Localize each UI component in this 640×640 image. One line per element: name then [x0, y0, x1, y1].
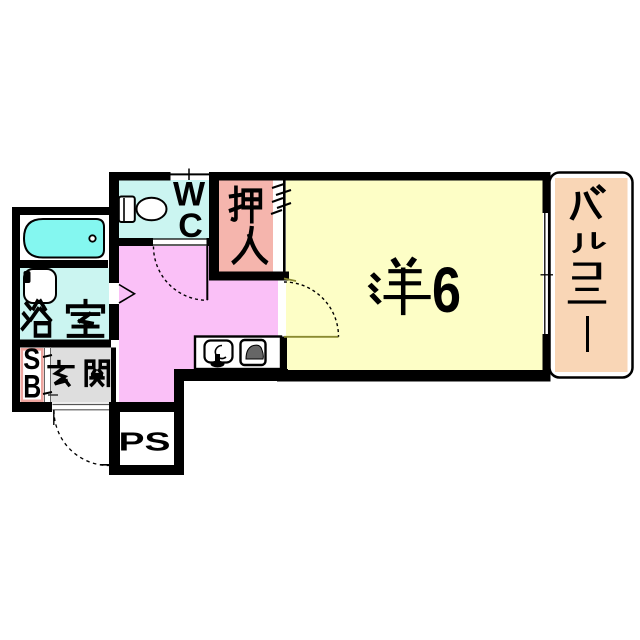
svg-text:6: 6 [432, 254, 461, 326]
svg-text:B: B [23, 369, 41, 405]
svg-text:C: C [178, 207, 203, 245]
svg-text:PS: PS [119, 427, 171, 457]
